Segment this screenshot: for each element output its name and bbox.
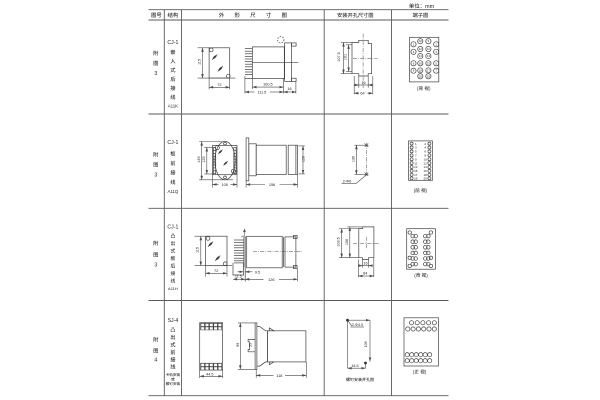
svg-text:125: 125 [202,156,206,162]
svg-text:115: 115 [197,59,201,65]
svg-text:64: 64 [363,272,367,276]
svg-text:20: 20 [424,177,428,181]
svg-text:16: 16 [363,261,367,265]
svg-text:16: 16 [287,87,291,91]
svg-text:64: 64 [360,92,364,96]
svg-text:100.5: 100.5 [263,83,273,87]
svg-text:10: 10 [419,39,423,43]
svg-text:SJ-4: SJ-4 [168,318,179,324]
svg-text:3: 3 [154,71,157,77]
svg-text:18: 18 [419,68,423,72]
svg-text:m: m [430,4,435,10]
svg-text:2-Φ6: 2-Φ6 [343,180,352,184]
svg-text:44.5: 44.5 [206,372,213,376]
svg-text:3: 3 [154,173,157,179]
svg-text:130: 130 [352,156,356,162]
svg-text:16: 16 [419,61,423,65]
svg-text:101: 101 [344,54,348,60]
svg-text:A11H: A11H [168,286,178,291]
svg-text:4: 4 [154,358,157,364]
svg-text:149: 149 [197,156,201,162]
svg-text:118: 118 [276,374,282,378]
svg-text:105: 105 [364,341,368,347]
svg-text:72: 72 [217,83,221,87]
svg-text:CJ-1: CJ-1 [167,225,178,231]
svg-text:20: 20 [419,74,423,78]
svg-text:17: 17 [427,68,431,72]
svg-text:CJ-1: CJ-1 [167,40,178,46]
svg-text:19: 19 [427,74,431,78]
svg-text:13: 13 [427,54,431,58]
svg-text:19: 19 [414,177,418,181]
svg-text:CJ-1: CJ-1 [167,140,178,146]
svg-text:A11Q: A11Q [167,189,178,194]
svg-text:9.5: 9.5 [255,270,260,274]
svg-text:16: 16 [361,81,365,85]
svg-text:44.5: 44.5 [352,364,359,368]
svg-text:A11K: A11K [168,104,178,109]
svg-text:2-Φ4.5: 2-Φ4.5 [352,323,363,327]
svg-text:15: 15 [427,61,431,65]
svg-text:107.5: 107.5 [337,52,341,62]
svg-text:11.5: 11.5 [235,274,242,278]
svg-text:120: 120 [302,156,306,162]
svg-text:115: 115 [196,247,200,253]
svg-text:106: 106 [345,239,349,245]
svg-text:111.5: 111.5 [257,91,266,95]
svg-text:14: 14 [419,54,423,58]
svg-text:103.5: 103.5 [336,237,340,247]
svg-text:3: 3 [154,263,157,269]
svg-text:105: 105 [222,183,228,187]
svg-text:99: 99 [236,343,240,347]
svg-text:12: 12 [419,47,423,51]
svg-text:126: 126 [268,278,274,282]
svg-text:35: 35 [249,343,253,347]
svg-text:156: 156 [269,183,275,187]
svg-text:72: 72 [214,269,218,273]
svg-text:11: 11 [427,47,430,51]
